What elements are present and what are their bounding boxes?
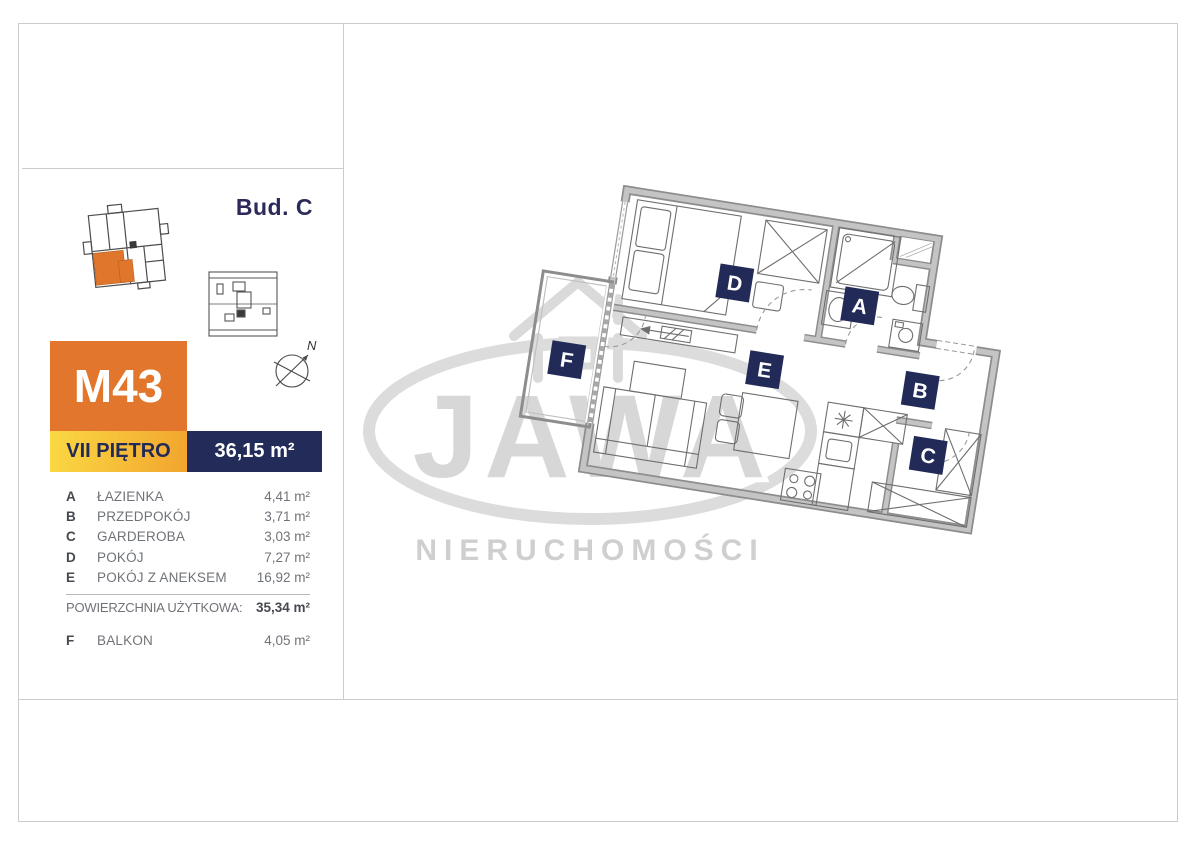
- floorplan: JAWA NIERUCHOMOŚCI: [344, 23, 1180, 699]
- building-title: Bud. C: [188, 194, 313, 221]
- nightstand: [752, 281, 784, 311]
- room-row-d: D POKÓJ 7,27 m²: [66, 547, 310, 567]
- room-name: BALKON: [97, 633, 264, 648]
- watermark-subtitle: NIERUCHOMOŚCI: [415, 533, 764, 567]
- room-row-e: E POKÓJ Z ANEKSEM 16,92 m²: [66, 568, 310, 588]
- room-name: ŁAZIENKA: [97, 489, 264, 504]
- room-area: 4,41 m²: [264, 489, 310, 504]
- room-area: 3,71 m²: [264, 509, 310, 524]
- shaft-niche: [898, 236, 934, 263]
- compass-north-label: N: [307, 338, 317, 353]
- room-letter: B: [66, 509, 97, 524]
- compass: N: [266, 338, 324, 394]
- room-area: 16,92 m²: [257, 570, 310, 585]
- shower: [830, 228, 901, 297]
- kitchen-sink: [819, 432, 860, 469]
- label-c: C: [909, 436, 948, 475]
- siteplan-thumbnail: [203, 268, 283, 342]
- room-name: POKÓJ Z ANEKSEM: [97, 570, 257, 585]
- label-e: E: [745, 350, 784, 389]
- room-row-a: A ŁAZIENKA 4,41 m²: [66, 486, 310, 506]
- label-d: D: [715, 264, 754, 303]
- content-bottom-rule: [19, 699, 1177, 700]
- kitchen-cabinet: [859, 408, 907, 445]
- room-letter: C: [66, 529, 97, 544]
- room-row-c: C GARDEROBA 3,03 m²: [66, 527, 310, 547]
- label-f: F: [547, 340, 586, 379]
- sidebar-top-rule: [22, 168, 344, 169]
- washing-machine: [889, 319, 923, 351]
- room-name: GARDEROBA: [97, 529, 264, 544]
- label-b: B: [901, 371, 940, 410]
- wardrobe-d: [758, 220, 828, 283]
- usable-area-row: POWIERZCHNIA UŻYTKOWA: 35,34 m²: [66, 594, 310, 615]
- entrance-door: [936, 337, 978, 357]
- fridge: [824, 402, 864, 437]
- room-letter: F: [66, 633, 97, 648]
- floor-badge: VII PIĘTRO: [50, 431, 187, 472]
- floorplate-thumbnail: [72, 198, 180, 300]
- highlighted-building: [237, 310, 245, 317]
- highlighted-unit: [93, 249, 134, 285]
- room-letter: A: [66, 489, 97, 504]
- room-row-b: B PRZEDPOKÓJ 3,71 m²: [66, 506, 310, 526]
- room-letter: D: [66, 550, 97, 565]
- label-a: A: [840, 286, 879, 325]
- total-area-badge: 36,15 m²: [187, 431, 322, 472]
- usable-area-value: 35,34 m²: [256, 600, 310, 615]
- room-list: A ŁAZIENKA 4,41 m² B PRZEDPOKÓJ 3,71 m² …: [66, 486, 310, 650]
- usable-area-label: POWIERZCHNIA UŻYTKOWA:: [66, 600, 256, 615]
- room-letter: E: [66, 570, 97, 585]
- room-name: POKÓJ: [97, 550, 264, 565]
- room-row-f: F BALKON 4,05 m²: [66, 630, 310, 650]
- unit-id-badge: M43: [50, 341, 187, 431]
- room-area: 3,03 m²: [264, 529, 310, 544]
- room-name: PRZEDPOKÓJ: [97, 509, 264, 524]
- room-area: 7,27 m²: [264, 550, 310, 565]
- room-area: 4,05 m²: [264, 633, 310, 648]
- core-shaft: [129, 241, 137, 249]
- flyer-page: Bud. C: [0, 0, 1200, 847]
